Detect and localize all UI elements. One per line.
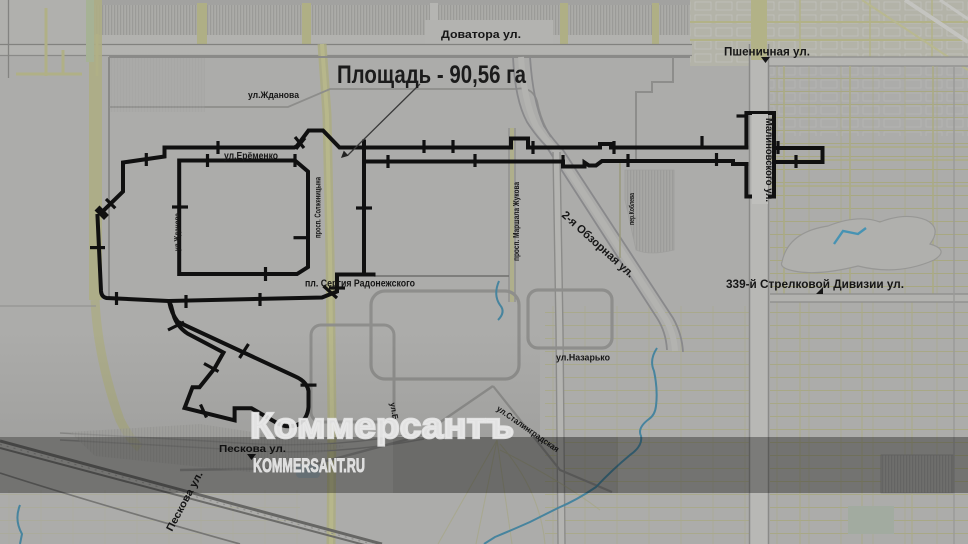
svg-text:просп. Солженицына: просп. Солженицына [313,177,323,238]
svg-text:Малиновского ул.: Малиновского ул. [763,118,775,202]
svg-text:ул.Ерёменко: ул.Ерёменко [224,150,278,162]
svg-text:ул.Жданова: ул.Жданова [248,90,300,101]
svg-text:339-й Стрелковой Дивизии ул.: 339-й Стрелковой Дивизии ул. [726,279,904,291]
svg-text:Коммерсантъ: Коммерсантъ [250,405,514,446]
svg-text:KOMMERSANT.RU: KOMMERSANT.RU [253,456,365,477]
svg-text:пл. Сергия Радонежского: пл. Сергия Радонежского [305,279,415,290]
svg-text:ул.Назарько: ул.Назарько [556,353,610,364]
svg-text:пер.Коблева: пер.Коблева [628,193,636,225]
svg-text:Доватора ул.: Доватора ул. [441,29,521,41]
svg-text:Площадь - 90,56 га: Площадь - 90,56 га [337,61,527,89]
svg-text:ул.Жданова: ул.Жданова [172,213,182,251]
svg-text:Пшеничная ул.: Пшеничная ул. [724,47,810,59]
svg-text:просп. Маршала Жукова: просп. Маршала Жукова [512,182,521,261]
